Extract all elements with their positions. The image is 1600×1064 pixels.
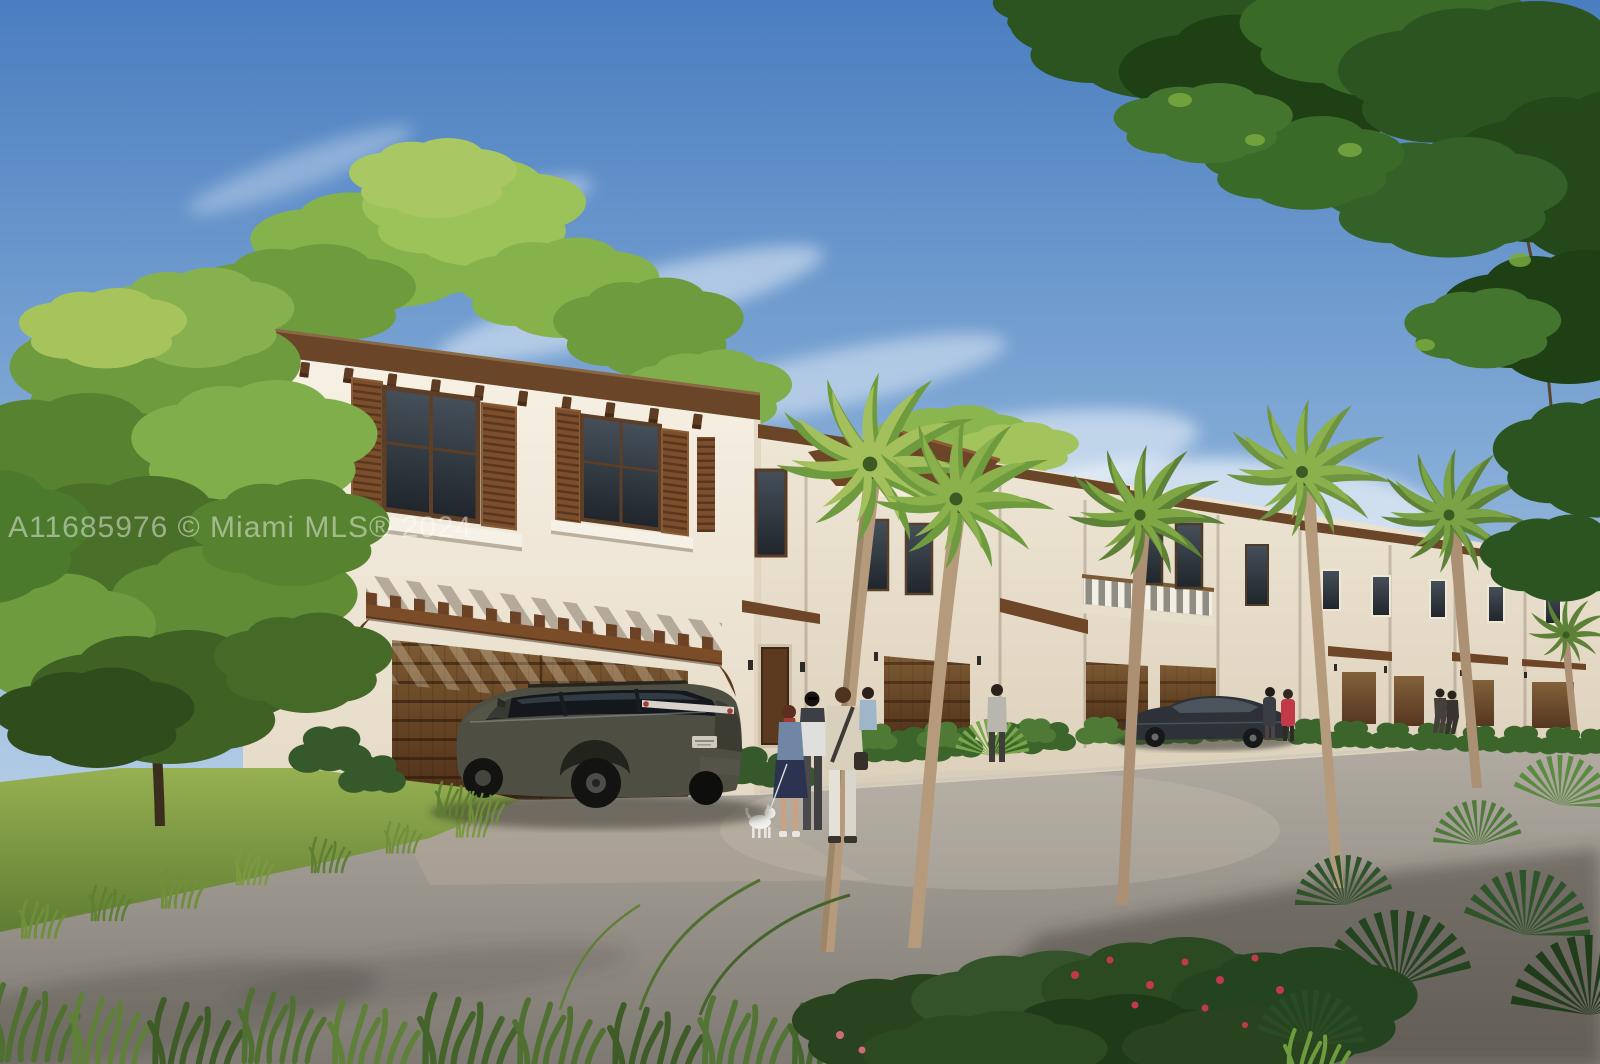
- rendering-canvas: A11685976 © Miami MLS® 2024: [0, 0, 1600, 1064]
- suv-wheel-right: [689, 771, 723, 805]
- entry-tall-window: [756, 470, 786, 556]
- watermark-text: A11685976 © Miami MLS® 2024: [8, 511, 472, 544]
- window-shutter-right: [482, 403, 516, 529]
- wall-sconce: [977, 656, 981, 665]
- corner-shutter: [697, 437, 715, 532]
- wall-sconce: [800, 662, 805, 672]
- window-shutter-right: [662, 429, 688, 535]
- suv: [430, 682, 770, 829]
- wall-sconce: [874, 652, 878, 661]
- scene-svg: A11685976 © Miami MLS® 2024: [0, 0, 1600, 1064]
- window-shutter-left: [556, 408, 580, 523]
- wall-sconce: [748, 660, 753, 670]
